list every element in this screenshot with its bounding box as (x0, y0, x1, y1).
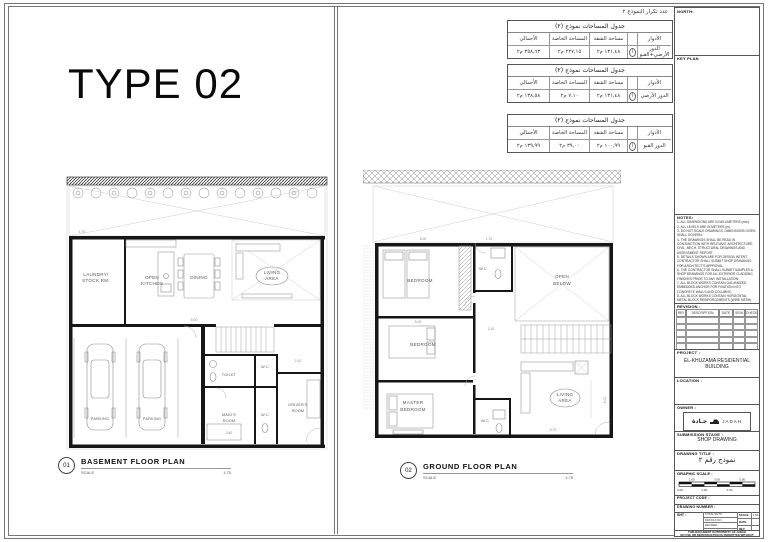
submission-value: SHOP DRAWING (675, 437, 759, 443)
sheet-info-right: SCALE1:50 DATE REV (737, 512, 759, 530)
north-section: NORTH: (675, 8, 759, 56)
label-open-below: OPEN (555, 274, 569, 279)
top-wall-hatch (67, 177, 327, 185)
owner-section: OWNER : جـادة JADAH (675, 404, 759, 432)
wc-fixtures (491, 248, 505, 433)
drawing-number-label: DRAWING NUMBER : (675, 504, 759, 509)
area-table-2: جدول المساحات نموذج (٢) الأجمالي المساحة… (507, 64, 673, 103)
area-table-3: جدول المساحات نموذج (٢) الأجمالي المساحة… (507, 114, 673, 153)
val-floor: الدور القبو (637, 140, 671, 152)
bedroom1-furniture (383, 250, 429, 298)
val-private: ٢٢٧,١٥ م٢ (549, 46, 589, 58)
label-parking-2: PARKING (143, 417, 161, 421)
north-label: NORTH: (675, 8, 759, 14)
col-private: المساحة الخاصة (549, 127, 589, 140)
label-bedroom-1: BEDROOM (407, 278, 433, 283)
kitchen-furniture (126, 240, 176, 296)
label-living: LIVING (557, 392, 574, 397)
revision-section: REVISION : REV DESCRIPTION DATE SIGN CHE… (675, 303, 759, 350)
submission-section: SUBMISSION STAGE : SHOP DRAWING (675, 431, 759, 451)
label-laundry: LAUNDRY/ (83, 272, 109, 277)
svg-text:1.00: 1.00 (689, 478, 695, 482)
svg-text:5.00: 5.00 (415, 320, 422, 324)
stairs (216, 327, 274, 352)
jadah-logo-arabic: جـادة (692, 418, 707, 425)
site-boundary (67, 177, 327, 449)
svg-text:4.00: 4.00 (727, 488, 733, 492)
plan-title: GROUND FLOOR PLAN (423, 462, 573, 471)
label-wc-top: W.C (479, 267, 487, 271)
svg-text:ROOM: ROOM (223, 419, 236, 423)
graphic-scale-section: GRAPHIC SCALE : 1.00 3.00 5.00 0.00 2.00… (675, 470, 759, 496)
revision-table: REV DESCRIPTION DATE SIGN CHECK (676, 309, 758, 350)
scale-label: SCALE (81, 470, 94, 475)
keyplan-section: KEY PLAN (675, 55, 759, 215)
footer-line-2: NO USE OR REPRODUCTION IS PERMITTED WITH… (675, 534, 759, 536)
sheet-type-title: TYPE 02 (68, 60, 243, 108)
col-total: الأجمالي (508, 77, 549, 90)
col-symbol (627, 77, 637, 90)
svg-text:1.70: 1.70 (486, 237, 493, 241)
roof-hatch-band (363, 170, 621, 183)
svg-text:AREA: AREA (558, 398, 572, 403)
terrace-x (373, 186, 613, 242)
label-wc-bottom: W.C (481, 419, 489, 423)
svg-text:ROOM: ROOM (292, 409, 305, 413)
svg-text:3.00: 3.00 (714, 478, 720, 482)
repetition-note: عدد تكرار النموذج ٢ (556, 9, 668, 15)
svg-text:1.70: 1.70 (79, 230, 86, 234)
val-symbol: أ (627, 46, 637, 58)
drawing-title-section: DRAWING TITLE : نموذج رقم ٢ (675, 450, 759, 471)
val-apartment: ١٠٠,٩٩ م٢ (589, 140, 627, 152)
project-label: PROJECT : (675, 349, 759, 355)
parking-stalls (74, 338, 178, 438)
svg-text:5.00: 5.00 (739, 478, 745, 482)
scale-label: SCALE (423, 475, 436, 480)
shrub-row (73, 188, 317, 198)
zone-divider-left (334, 7, 335, 534)
notes-section: NOTES: 1- ALL DIMENSIONS ARE IN MILLIMET… (675, 214, 759, 304)
basement-floor-plan: LAUNDRY/ STOCK RM. OPEN KITCHEN DINING L… (66, 176, 328, 461)
ground-floor-plan: BEDROOM W.C OPEN BELOW BEDROOM MASTER BE… (363, 170, 621, 448)
plan-number-badge: 02 (400, 462, 417, 479)
svg-text:5.70: 5.70 (550, 428, 557, 432)
ground-plan-caption: 02 GROUND FLOOR PLAN SCALE 1:75 (400, 462, 573, 480)
project-name: EL-KHUZAMA RESIDENTIAL BUILDING (675, 358, 759, 370)
label-maids: MAID'S (222, 413, 236, 417)
svg-text:2.10: 2.10 (488, 327, 495, 331)
svg-text:STOCK RM.: STOCK RM. (82, 278, 110, 283)
living-furniture (521, 361, 591, 418)
val-symbol: أ (627, 90, 637, 102)
title-block: NORTH: KEY PLAN NOTES: 1- ALL DIMENSIONS… (674, 7, 760, 537)
jadah-logo-latin: JADAH (722, 419, 742, 424)
val-apartment: ١٣١,٤٨ م٢ (589, 46, 627, 58)
sheet-info-section: SHT : TOTAL SHTS : DETAILS NO : REVISED … (675, 512, 759, 531)
col-total: الأجمالي (508, 127, 549, 140)
label-wc-small: W.C (261, 365, 269, 369)
val-floor: الدور الأرضي (637, 90, 671, 102)
col-total: الأجمالي (508, 33, 549, 46)
notes-list: 1- ALL DIMENSIONS ARE IN MILLIMETERS (mm… (675, 220, 759, 304)
label-drivers: DRIVER'S (288, 403, 307, 407)
sht-label: SHT : (675, 512, 703, 530)
col-apartment: مساحة الشقة (589, 77, 627, 90)
val-private: ٧,١٠ م٢ (549, 90, 589, 102)
plan-title: BASEMENT FLOOR PLAN (81, 457, 231, 466)
basement-plan-caption: 01 BASEMENT FLOOR PLAN SCALE 1:75 (58, 457, 231, 475)
scale-value: 1:75 (223, 470, 231, 475)
area-table-1: جدول المساحات نموذج (٢) الأجمالي المساحة… (507, 20, 673, 59)
zone-divider-right (337, 7, 338, 534)
area-table-title: جدول المساحات نموذج (٢) (508, 21, 672, 33)
jadah-logo-icon (710, 418, 719, 425)
svg-text:BELOW: BELOW (553, 281, 571, 286)
project-section: PROJECT : EL-KHUZAMA RESIDENTIAL BUILDIN… (675, 349, 759, 378)
label-parking-1: PARKING (91, 417, 109, 421)
svg-text:2.10: 2.10 (295, 359, 302, 363)
scale-value: 1:75 (565, 475, 573, 480)
svg-text:2.00: 2.00 (701, 488, 707, 492)
label-dining: DINING (190, 275, 208, 280)
graphic-scale-bar: 1.00 3.00 5.00 0.00 2.00 4.00 (675, 477, 759, 493)
drawing-title-value: نموذج رقم ٢ (675, 456, 759, 464)
drawing-sheet: TYPE 02 عدد تكرار النموذج ٢ جدول المساحا… (0, 0, 768, 542)
col-private: المساحة الخاصة (549, 33, 589, 46)
stairs (521, 325, 611, 353)
svg-text:KITCHEN: KITCHEN (141, 281, 163, 286)
svg-text:5.00: 5.00 (420, 237, 427, 241)
sheet-info-left: TOTAL SHTS : DETAILS NO : REVISED : APPR… (703, 512, 737, 530)
label-toilet: TOILET (222, 373, 237, 377)
col-symbol (627, 127, 637, 140)
graphic-scale-label: GRAPHIC SCALE : (675, 470, 759, 477)
area-table-title: جدول المساحات نموذج (٢) (508, 65, 672, 77)
jadah-logo: جـادة JADAH (683, 412, 751, 431)
project-code-label: PROJECT CODE : (675, 495, 759, 500)
val-apartment: ١٣١,٤٨ م٢ (589, 90, 627, 102)
svg-text:BEDROOM: BEDROOM (400, 407, 426, 412)
plan-number-badge: 01 (58, 457, 75, 474)
svg-text:5.00: 5.00 (191, 318, 198, 322)
terrace-x (69, 186, 325, 236)
keyplan-label: KEY PLAN (675, 55, 759, 61)
svg-text:AREA: AREA (265, 276, 279, 281)
location-section: LOCATION : (675, 377, 759, 405)
svg-text:3.40: 3.40 (226, 431, 233, 435)
svg-text:0.00: 0.00 (677, 488, 683, 492)
label-living: LIVING (264, 270, 281, 275)
label-wc: W.C (261, 413, 269, 417)
val-total: ١٣٨,٥٨ م٢ (508, 90, 549, 102)
svg-text:4.00: 4.00 (603, 397, 607, 404)
col-apartment: مساحة الشقة (589, 33, 627, 46)
label-bedroom-2: BEDROOM (410, 342, 436, 347)
col-private: المساحة الخاصة (549, 77, 589, 90)
val-total: ١٣٩,٩٩ م٢ (508, 140, 549, 152)
col-floor: الأدوار (637, 77, 671, 90)
label-kitchen: OPEN (145, 275, 159, 280)
col-floor: الأدوار (637, 33, 671, 46)
val-private: ٣٩,٠٠ م٢ (549, 140, 589, 152)
location-label: LOCATION : (675, 377, 759, 383)
val-floor: الدور الأرضي+القبو (637, 46, 671, 58)
label-master-bedroom: MASTER (403, 400, 424, 405)
col-floor: الأدوار (637, 127, 671, 140)
area-table-title: جدول المساحات نموذج (٢) (508, 115, 672, 127)
val-symbol: أ (627, 140, 637, 152)
val-total: ٣٥٨,٦٣ م٢ (508, 46, 549, 58)
owner-label: OWNER : (675, 404, 759, 410)
wardrobe (459, 246, 471, 310)
dot-strip (363, 245, 374, 410)
col-apartment: مساحة الشقة (589, 127, 627, 140)
col-symbol (627, 33, 637, 46)
copyright-footer: THIS DOCUMENT IS PROPERTY OF JADAH NO US… (675, 530, 759, 536)
